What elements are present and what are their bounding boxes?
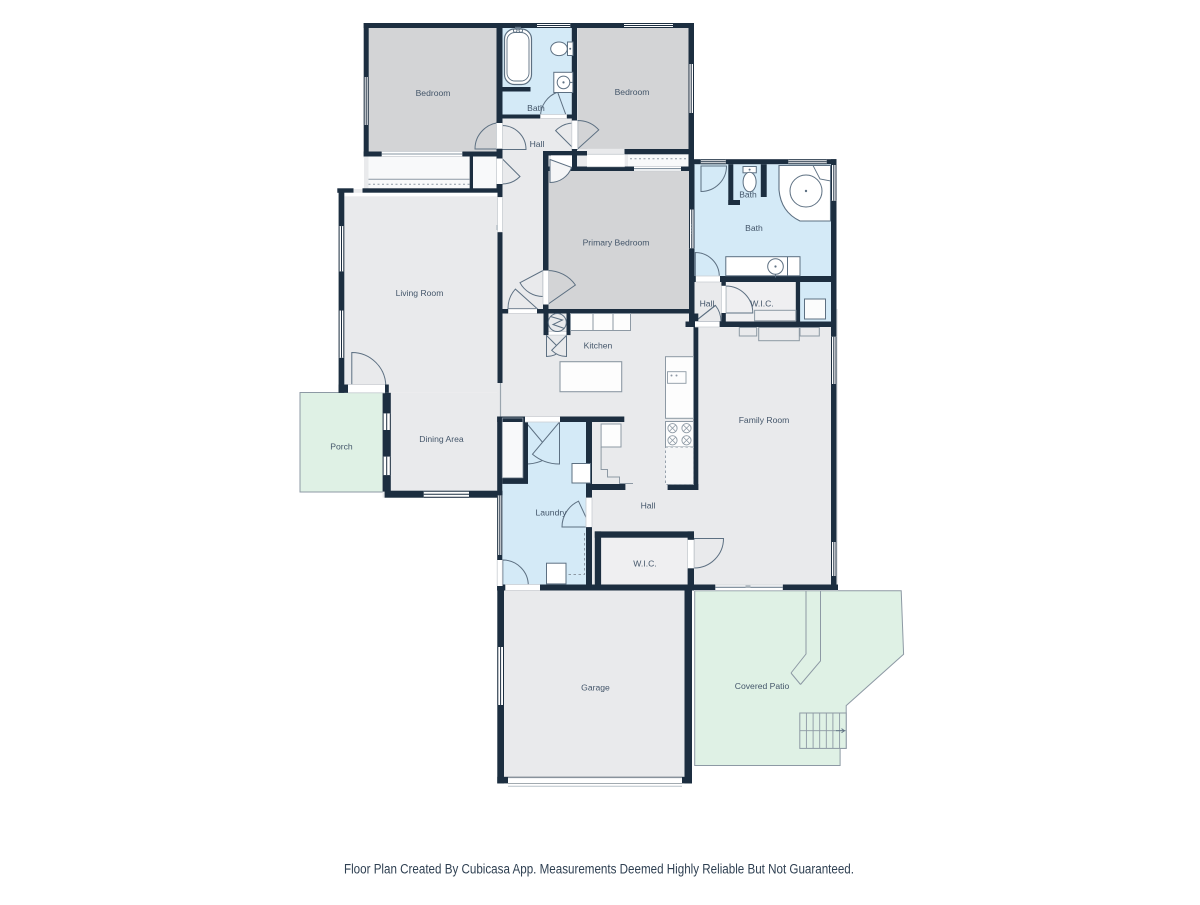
svg-text:Bedroom: Bedroom [615,87,650,97]
svg-text:Dining Area: Dining Area [419,434,464,444]
svg-text:Bath: Bath [745,223,763,233]
svg-text:Family Room: Family Room [739,415,790,425]
svg-text:Primary Bedroom: Primary Bedroom [583,238,650,248]
svg-text:Kitchen: Kitchen [584,341,613,351]
svg-text:Living Room: Living Room [396,288,444,298]
svg-text:Hall: Hall [700,299,715,309]
svg-text:Bath: Bath [527,103,545,113]
svg-text:Covered Patio: Covered Patio [735,681,790,691]
svg-text:Bath: Bath [739,190,757,200]
svg-text:W.I.C.: W.I.C. [750,299,773,309]
svg-text:Laundry: Laundry [535,508,567,518]
svg-text:Garage: Garage [581,683,610,693]
svg-text:Floor Plan Created By Cubicasa: Floor Plan Created By Cubicasa App. Meas… [344,862,854,878]
svg-text:W.I.C.: W.I.C. [633,559,656,569]
svg-text:Hall: Hall [641,501,656,511]
svg-text:Porch: Porch [330,442,353,452]
svg-text:Hall: Hall [530,139,545,149]
svg-text:Bedroom: Bedroom [416,88,451,98]
